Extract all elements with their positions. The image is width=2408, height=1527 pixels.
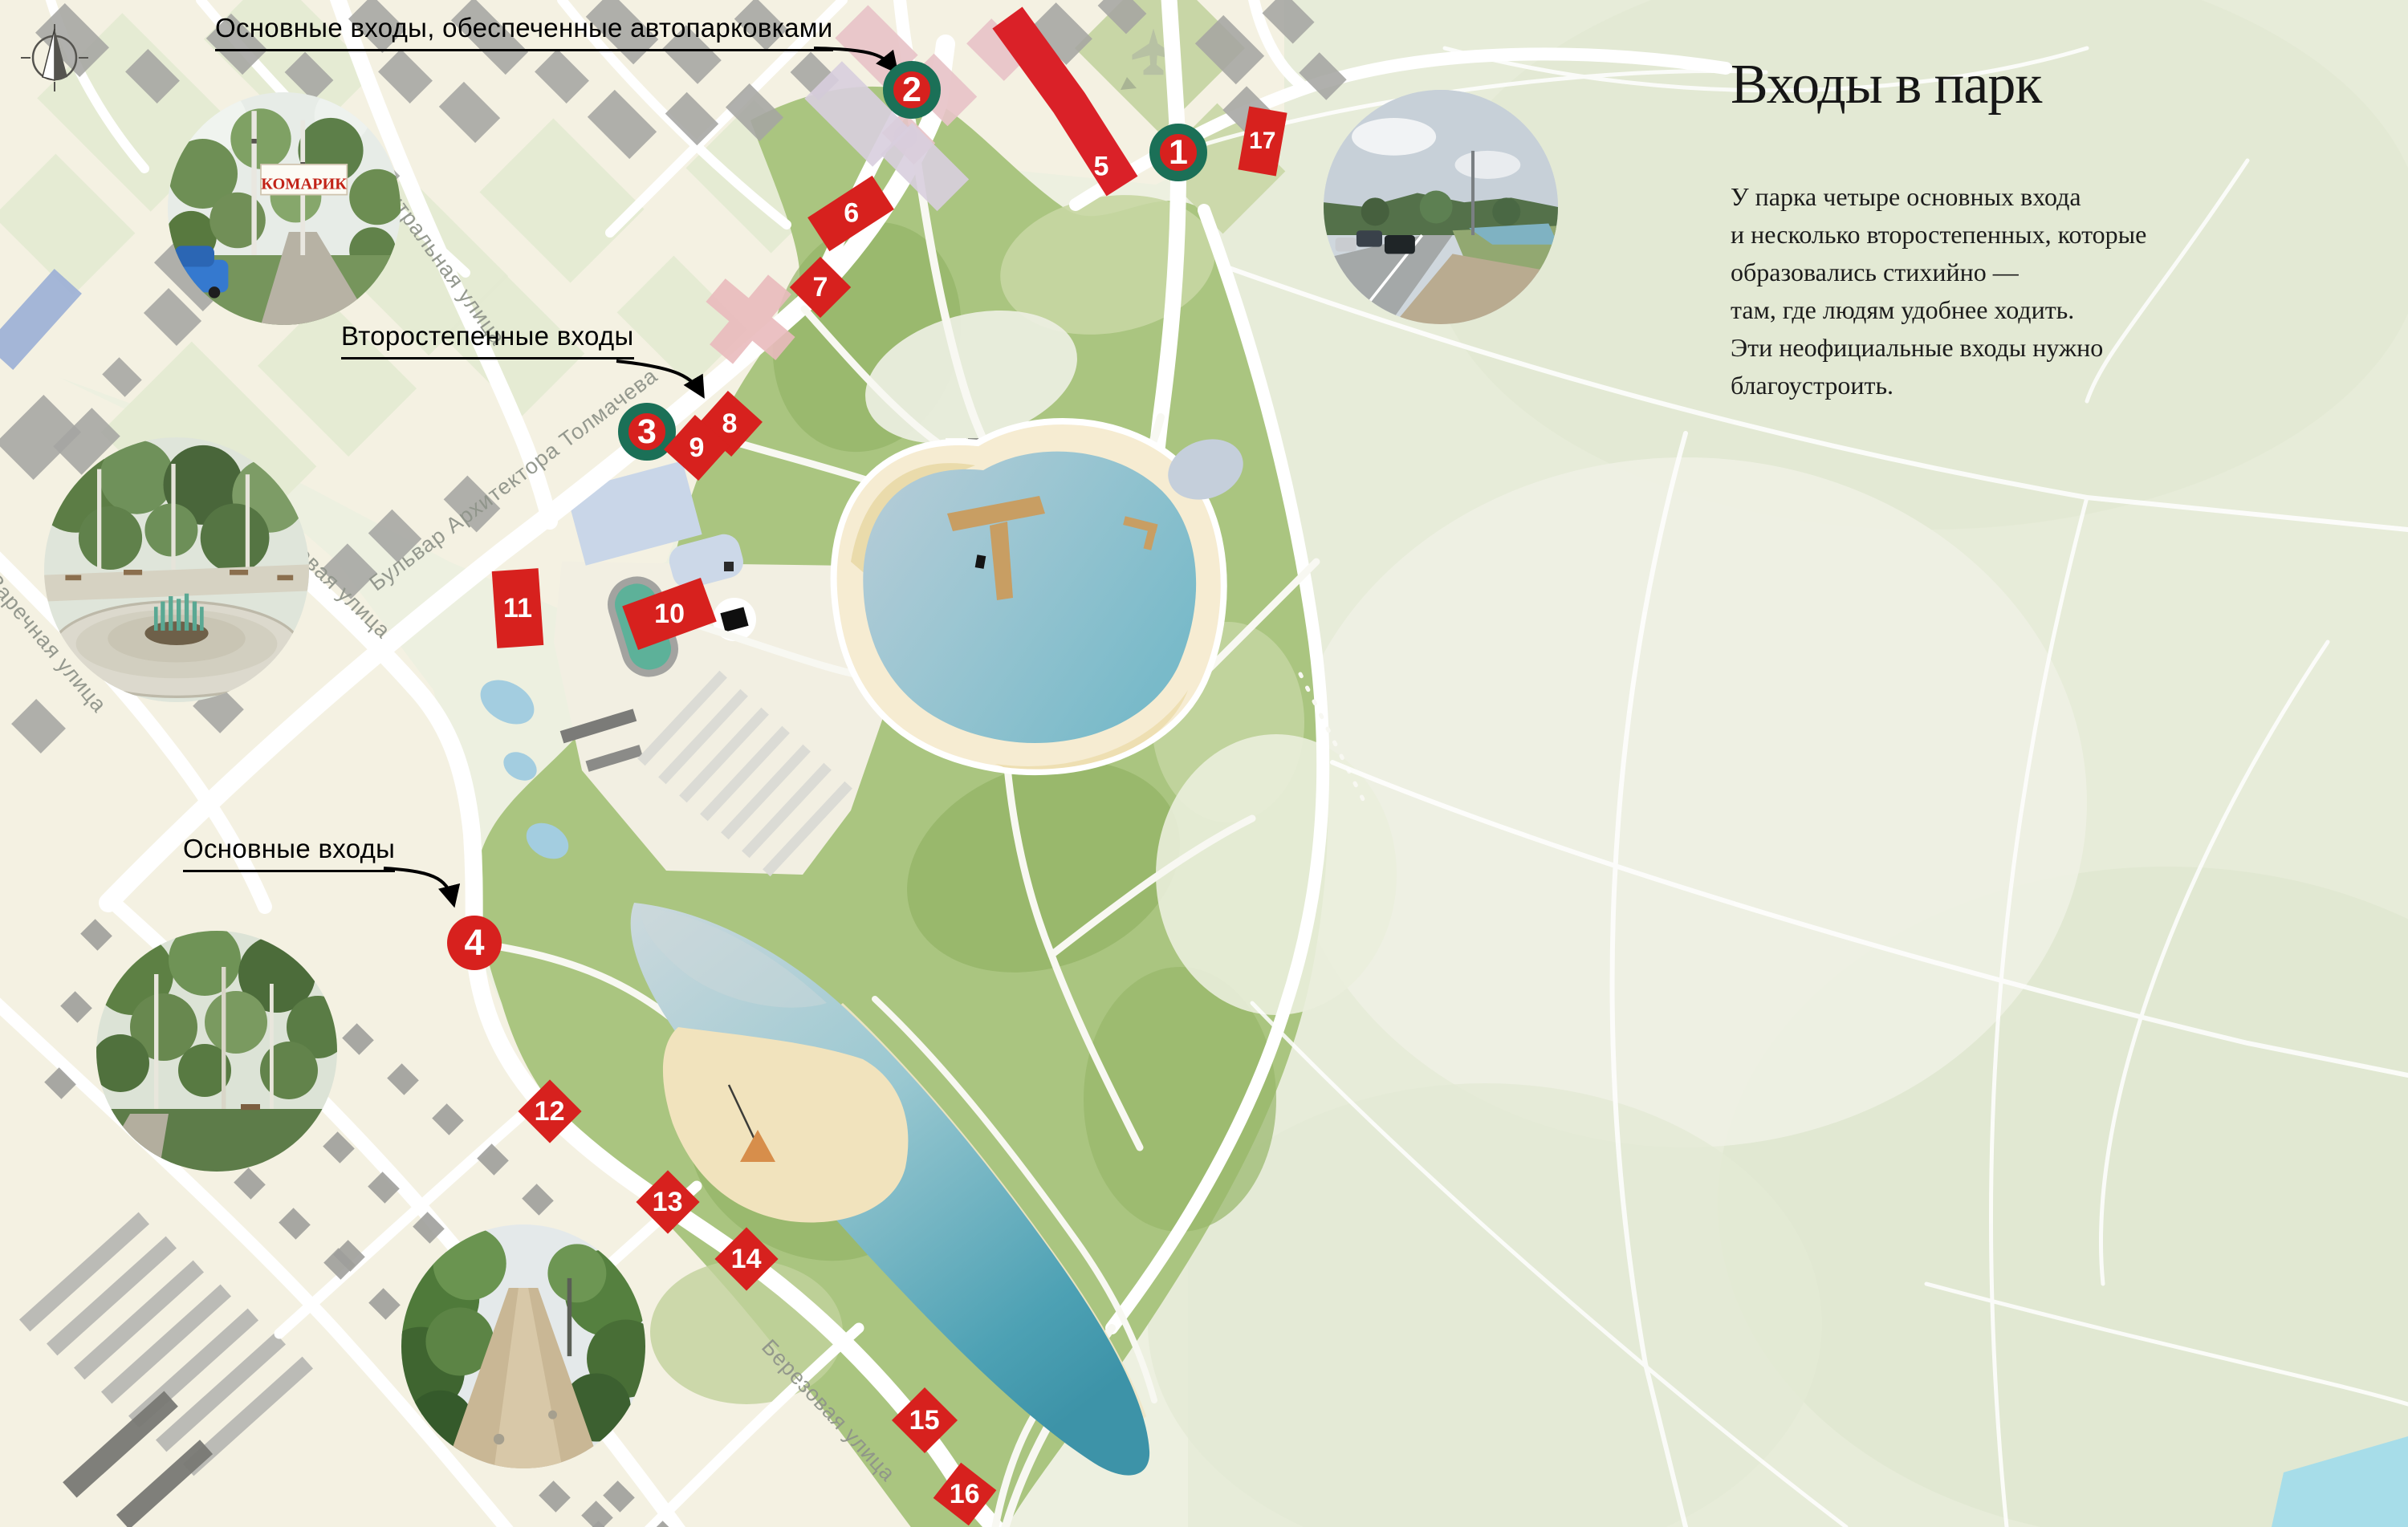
- intro-paragraph: У парка четыре основных входа и нескольк…: [1731, 178, 2405, 404]
- photo-inset-fountain: [44, 437, 309, 702]
- annotation-secondary-entrances: Второстепенные входы: [341, 321, 634, 359]
- entrance-marker-5[interactable]: 5: [1094, 152, 1109, 183]
- photo-inset-entrance-sign: КОМАРИК: [168, 92, 401, 325]
- annotation-parking-entrances: Основные входы, обеспеченные автопарковк…: [215, 13, 833, 51]
- photo-inset-dirt-path: [401, 1224, 645, 1468]
- entrance-sign-text: КОМАРИК: [261, 175, 347, 193]
- entrance-marker-2[interactable]: 2: [883, 61, 941, 119]
- entrance-marker-1[interactable]: 1: [1149, 124, 1207, 181]
- photo-inset-lakeside-road: [1324, 90, 1558, 324]
- park-entrances-map: Центральная улица Бульвар Архитектора То…: [0, 0, 2408, 1527]
- photo-inset-forest-entrance: [96, 931, 337, 1172]
- annotation-main-entrances-label: Основные входы: [183, 834, 395, 872]
- entrance-marker-11[interactable]: 11: [492, 568, 544, 648]
- page-title: Входы в парк: [1731, 53, 2041, 117]
- entrance-marker-4[interactable]: 4: [447, 916, 502, 970]
- annotation-main-entrances: Основные входы: [183, 834, 395, 872]
- annotation-secondary-entrances-label: Второстепенные входы: [341, 321, 634, 359]
- annotation-parking-entrances-label: Основные входы, обеспеченные автопарковк…: [215, 13, 833, 51]
